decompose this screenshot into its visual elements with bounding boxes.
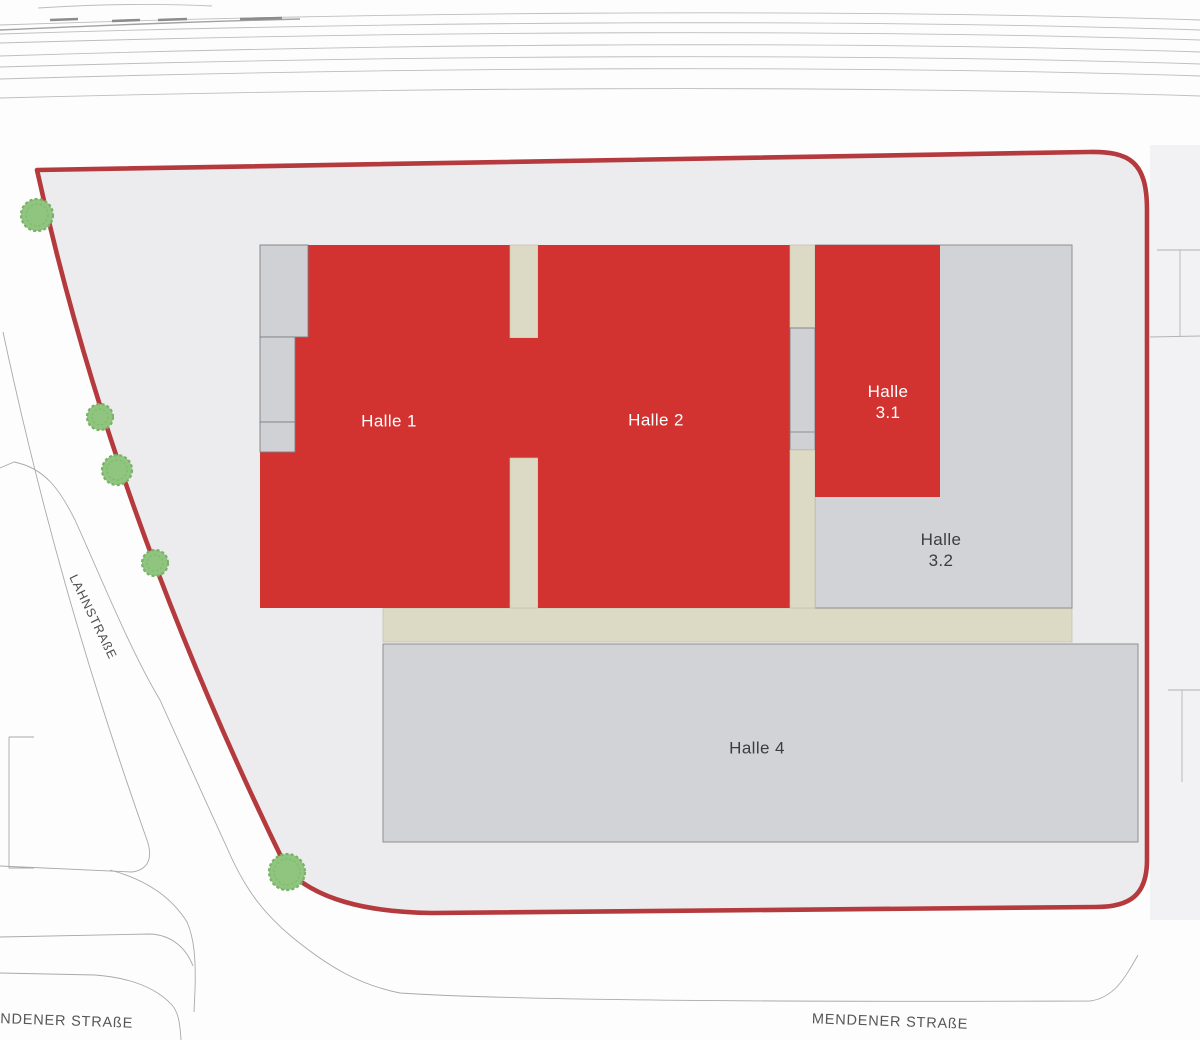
right-margin-area bbox=[1150, 145, 1200, 920]
tree-icon bbox=[102, 455, 132, 485]
track-tick bbox=[50, 19, 78, 20]
halle-2-shape bbox=[538, 245, 790, 608]
railway-lines bbox=[0, 4, 1200, 98]
track-tick bbox=[112, 20, 140, 21]
tree-icon bbox=[269, 854, 305, 890]
annex-block bbox=[260, 245, 308, 337]
corridor-segment bbox=[790, 245, 815, 328]
buildings bbox=[260, 245, 1138, 842]
track-tick bbox=[240, 18, 282, 19]
halle-4-shape bbox=[383, 644, 1138, 842]
corridor-segment bbox=[790, 450, 815, 608]
corridor-segment bbox=[510, 458, 538, 608]
halle-3-1-shape bbox=[815, 245, 940, 497]
annex-block bbox=[260, 337, 295, 422]
site-plan: Halle 1 Halle 2 Halle 3.1 Halle 3.2 Hall… bbox=[0, 0, 1200, 1040]
tree-icon bbox=[87, 404, 113, 430]
annex-block bbox=[260, 422, 295, 452]
tree-icon bbox=[142, 550, 168, 576]
corridor-segment bbox=[510, 245, 538, 338]
corridor-segment bbox=[510, 338, 538, 458]
tree-icon bbox=[21, 199, 53, 231]
site-plan-drawing bbox=[0, 0, 1200, 1040]
track-tick bbox=[158, 19, 187, 20]
apron-strip bbox=[383, 608, 1072, 642]
